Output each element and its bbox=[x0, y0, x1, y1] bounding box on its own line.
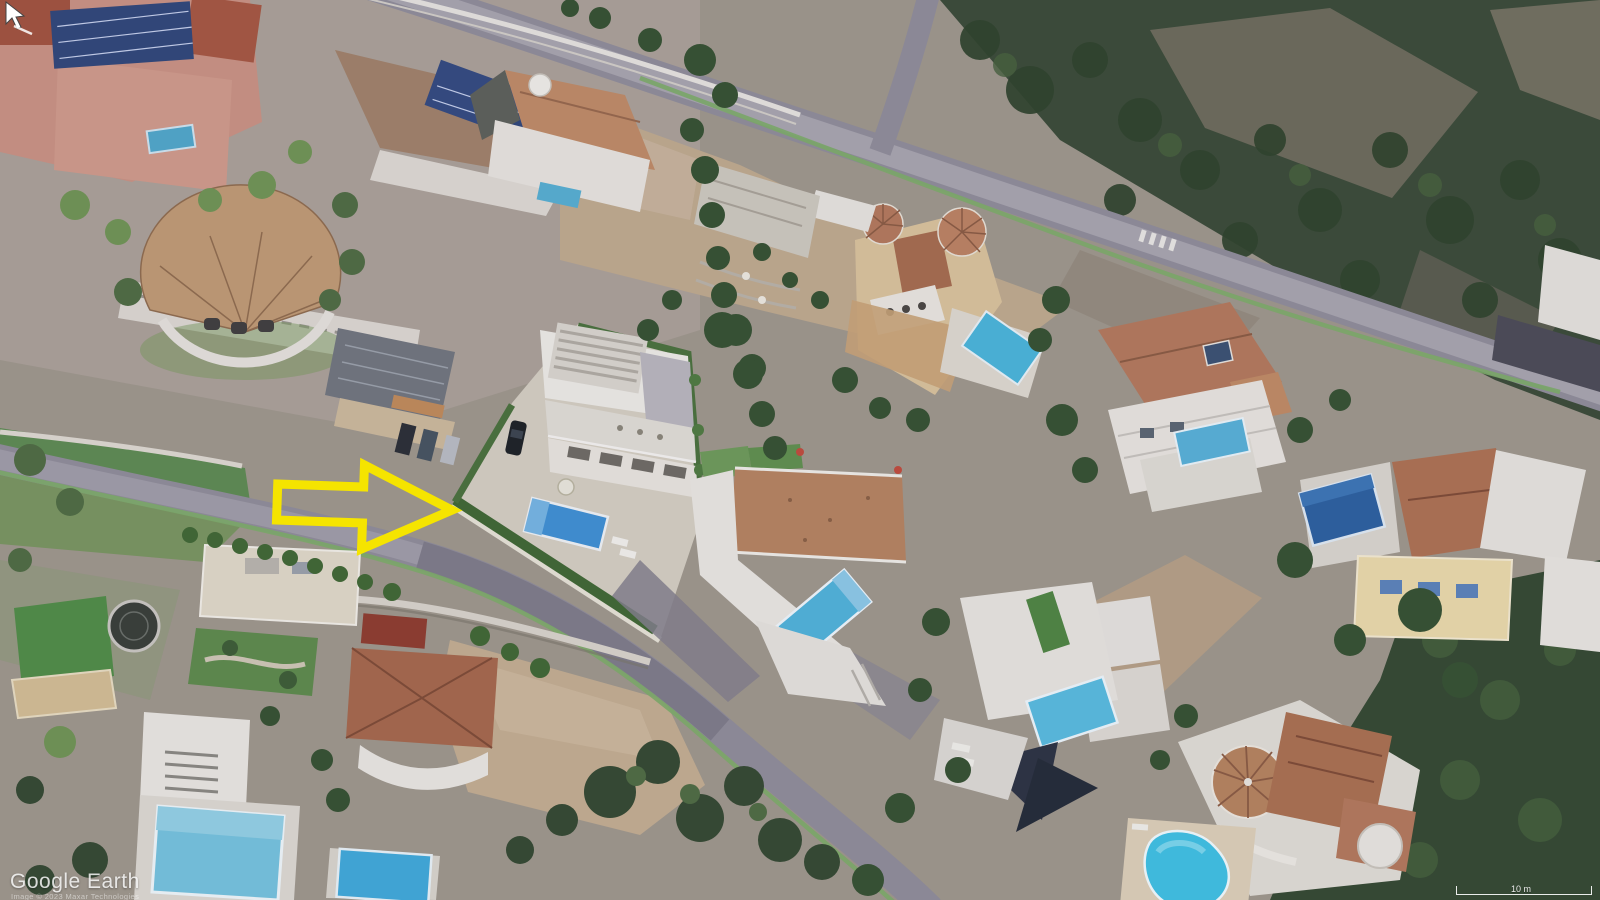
imagery-attribution: Image © 2023 Maxar Technologies bbox=[11, 892, 139, 900]
mouse-cursor-icon bbox=[0, 0, 34, 36]
atmosphere-tint bbox=[0, 0, 1600, 900]
google-earth-watermark: Google Earth bbox=[10, 870, 140, 894]
earth-view-canvas[interactable]: Google Earth Image © 2023 Maxar Technolo… bbox=[0, 0, 1600, 900]
scale-bar-label: 10 m bbox=[1446, 884, 1596, 894]
scale-bar: 10 m bbox=[1446, 876, 1596, 898]
aerial-scene bbox=[0, 0, 1600, 900]
